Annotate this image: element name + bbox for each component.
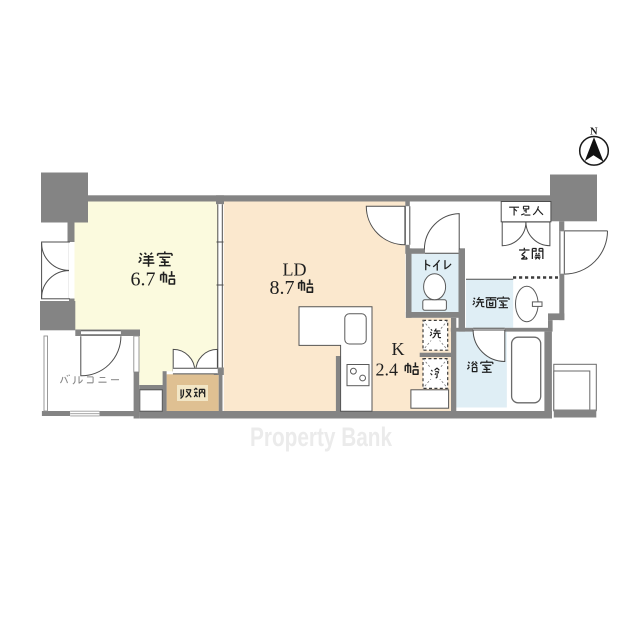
svg-text:Property Bank: Property Bank <box>250 422 393 452</box>
svg-text:8.7: 8.7 <box>270 277 295 299</box>
svg-text:6.7: 6.7 <box>131 268 156 290</box>
svg-text:N: N <box>590 127 598 138</box>
svg-text:K: K <box>392 339 405 359</box>
svg-text:2.4: 2.4 <box>376 359 399 379</box>
